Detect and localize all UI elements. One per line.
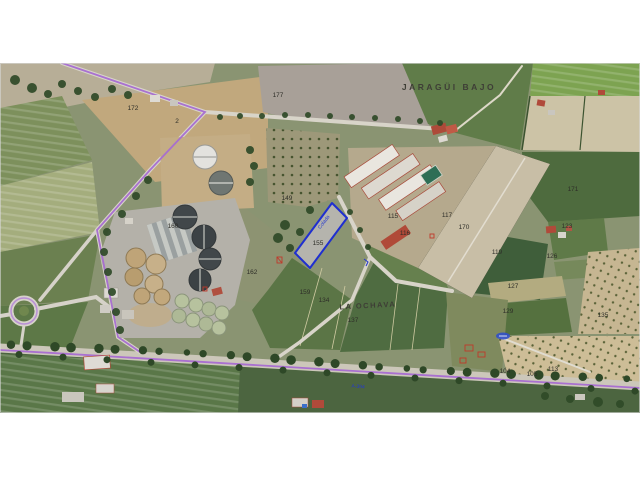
roadside-tree <box>7 341 15 349</box>
parcel-number: 104 <box>500 368 511 375</box>
parcel-number: 162 <box>247 269 258 276</box>
parcel-number: 159 <box>300 289 311 296</box>
roadside-tree <box>595 374 603 382</box>
parcel-number: 119 <box>492 249 503 256</box>
parcel-number: 177 <box>273 92 284 99</box>
parcel-number: 155 <box>313 240 324 247</box>
roadside-tree <box>155 348 162 355</box>
roadside-tree <box>192 361 199 368</box>
roadside-tree <box>490 369 499 378</box>
roadside-tree <box>104 356 111 363</box>
parcel-number: 129 <box>503 308 514 315</box>
roadside-tree <box>66 343 76 353</box>
roadside-tree <box>139 346 147 354</box>
roadside-tree <box>359 361 367 369</box>
parcel-number: 105 <box>527 371 538 378</box>
map-imagery: 1722177149160162155159134137115116117170… <box>0 63 640 413</box>
roadside-tree <box>447 367 455 375</box>
parcel-number: 117 <box>442 212 453 219</box>
roadside-tree <box>588 385 595 392</box>
roadside-tree <box>94 344 103 353</box>
roadside-tree <box>579 373 588 382</box>
parcel-number: 126 <box>547 253 558 260</box>
pool <box>302 404 307 408</box>
parcel-number: 172 <box>128 105 139 112</box>
roadside-tree <box>375 363 383 371</box>
parcel-number: 2 <box>175 118 179 125</box>
roadside-tree <box>404 365 411 372</box>
parcel-number: 160 <box>168 223 179 230</box>
parcel-number: 149 <box>282 195 293 202</box>
roadside-tree <box>148 359 155 366</box>
roadside-tree <box>463 368 472 377</box>
roadside-tree <box>50 342 59 351</box>
road-name-label: A-394 <box>351 384 365 391</box>
roadside-tree <box>420 366 427 373</box>
parcel-number: 135 <box>598 312 609 319</box>
roadside-tree <box>286 355 296 365</box>
roadside-tree <box>236 364 243 371</box>
roadside-tree <box>623 375 630 382</box>
place-name-label: JARAGÜI BAJO <box>402 82 496 92</box>
roadside-tree <box>331 359 340 368</box>
parcel-number: 123 <box>562 223 573 230</box>
roadside-tree <box>184 349 190 355</box>
roadside-tree <box>227 351 235 359</box>
roadside-tree <box>324 369 331 376</box>
roadside-tree <box>60 354 67 361</box>
roadside-tree <box>456 377 463 384</box>
roadside-tree <box>270 354 279 363</box>
parcel-number: 134 <box>319 297 330 304</box>
map-viewport: 1722177149160162155159134137115116117170… <box>0 0 640 480</box>
parcel-number: 115 <box>388 213 399 220</box>
roadside-tree <box>199 350 206 357</box>
roadside-tree <box>500 380 507 387</box>
roadside-tree <box>412 374 419 381</box>
roadside-tree <box>111 345 120 354</box>
roadside-tree <box>544 382 551 389</box>
parcel-number: 113 <box>548 366 559 373</box>
parcel-number: 127 <box>508 283 519 290</box>
parcel-number: 171 <box>568 186 579 193</box>
roadside-tree <box>314 357 323 366</box>
roadside-tree <box>632 388 639 395</box>
aerial-map[interactable]: 1722177149160162155159134137115116117170… <box>0 0 640 480</box>
roadside-tree <box>368 372 375 379</box>
roadside-tree <box>243 352 252 361</box>
roadside-tree <box>280 367 287 374</box>
roadside-tree <box>22 341 31 350</box>
parcel-number: 170 <box>459 224 470 231</box>
parcel-number: 137 <box>348 317 359 324</box>
roadside-tree <box>16 351 23 358</box>
parcel-number: 116 <box>400 230 411 237</box>
